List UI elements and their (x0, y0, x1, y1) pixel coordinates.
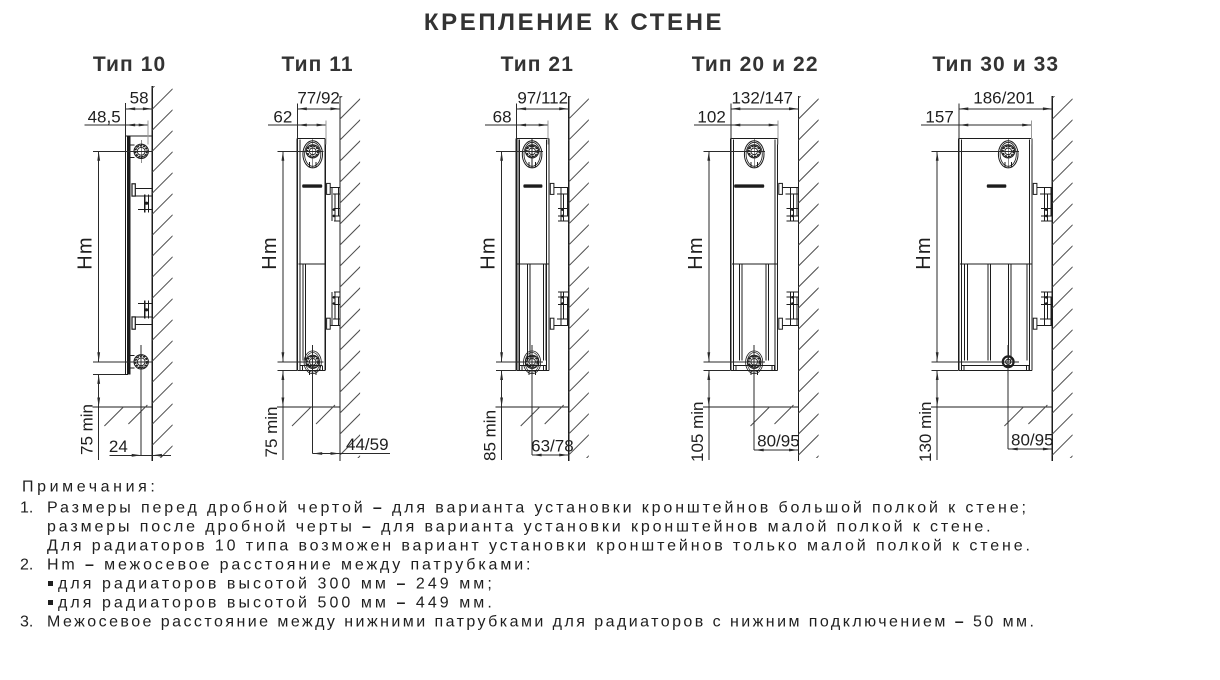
svg-text:Hm – межосевое расстояние межд: Hm – межосевое расстояние между патрубка… (47, 557, 533, 574)
svg-text:132/147: 132/147 (731, 88, 792, 107)
svg-text:130 min: 130 min (916, 402, 935, 462)
svg-text:Hm: Hm (685, 236, 707, 270)
svg-text:157: 157 (925, 107, 953, 126)
svg-text:Hm: Hm (259, 236, 281, 270)
svg-text:Тип 30 и 33: Тип 30 и 33 (932, 53, 1059, 76)
svg-text:Тип 11: Тип 11 (281, 53, 353, 76)
svg-text:75 min: 75 min (78, 404, 97, 455)
svg-text:58: 58 (130, 88, 149, 107)
svg-text:102: 102 (697, 107, 725, 126)
svg-text:77/92: 77/92 (297, 88, 340, 107)
svg-text:3.: 3. (20, 614, 33, 631)
svg-text:80/95: 80/95 (1011, 431, 1054, 450)
svg-text:24: 24 (109, 437, 128, 456)
svg-text:Тип 21: Тип 21 (501, 53, 574, 76)
svg-text:Межосевое расстояние между ниж: Межосевое расстояние между нижними патру… (47, 614, 1036, 631)
svg-text:80/95: 80/95 (757, 432, 800, 451)
svg-text:48,5: 48,5 (88, 107, 121, 126)
svg-text:Hm: Hm (75, 236, 97, 270)
svg-text:105 min: 105 min (688, 402, 707, 462)
svg-text:Примечания:: Примечания: (22, 479, 158, 496)
svg-text:2.: 2. (20, 557, 33, 574)
svg-text:186/201: 186/201 (973, 88, 1034, 107)
svg-text:Hm: Hm (913, 236, 935, 270)
svg-text:68: 68 (493, 107, 512, 126)
svg-text:для радиаторов высотой 500 мм: для радиаторов высотой 500 мм – 449 мм. (58, 595, 495, 612)
svg-text:Размеры перед дробной чертой –: Размеры перед дробной чертой – для вариа… (47, 500, 1029, 517)
svg-text:75 min: 75 min (262, 406, 281, 457)
svg-text:Тип 10: Тип 10 (93, 53, 166, 76)
svg-text:1.: 1. (20, 500, 33, 517)
svg-text:63/78: 63/78 (531, 437, 574, 456)
svg-text:КРЕПЛЕНИЕ К СТЕНЕ: КРЕПЛЕНИЕ К СТЕНЕ (424, 9, 724, 36)
svg-text:44/59: 44/59 (346, 435, 389, 454)
svg-text:Hm: Hm (478, 236, 500, 270)
svg-text:размеры после дробной черты –: размеры после дробной черты – для вариан… (47, 519, 994, 536)
svg-text:97/112: 97/112 (517, 88, 568, 107)
svg-text:85 min: 85 min (481, 410, 500, 461)
svg-text:Тип 20 и 22: Тип 20 и 22 (692, 53, 819, 76)
svg-text:62: 62 (273, 107, 292, 126)
svg-text:Для радиаторов 10 типа возможе: Для радиаторов 10 типа возможен вариант … (47, 538, 1033, 555)
svg-text:для радиаторов высотой 300 мм: для радиаторов высотой 300 мм – 249 мм; (58, 576, 495, 593)
